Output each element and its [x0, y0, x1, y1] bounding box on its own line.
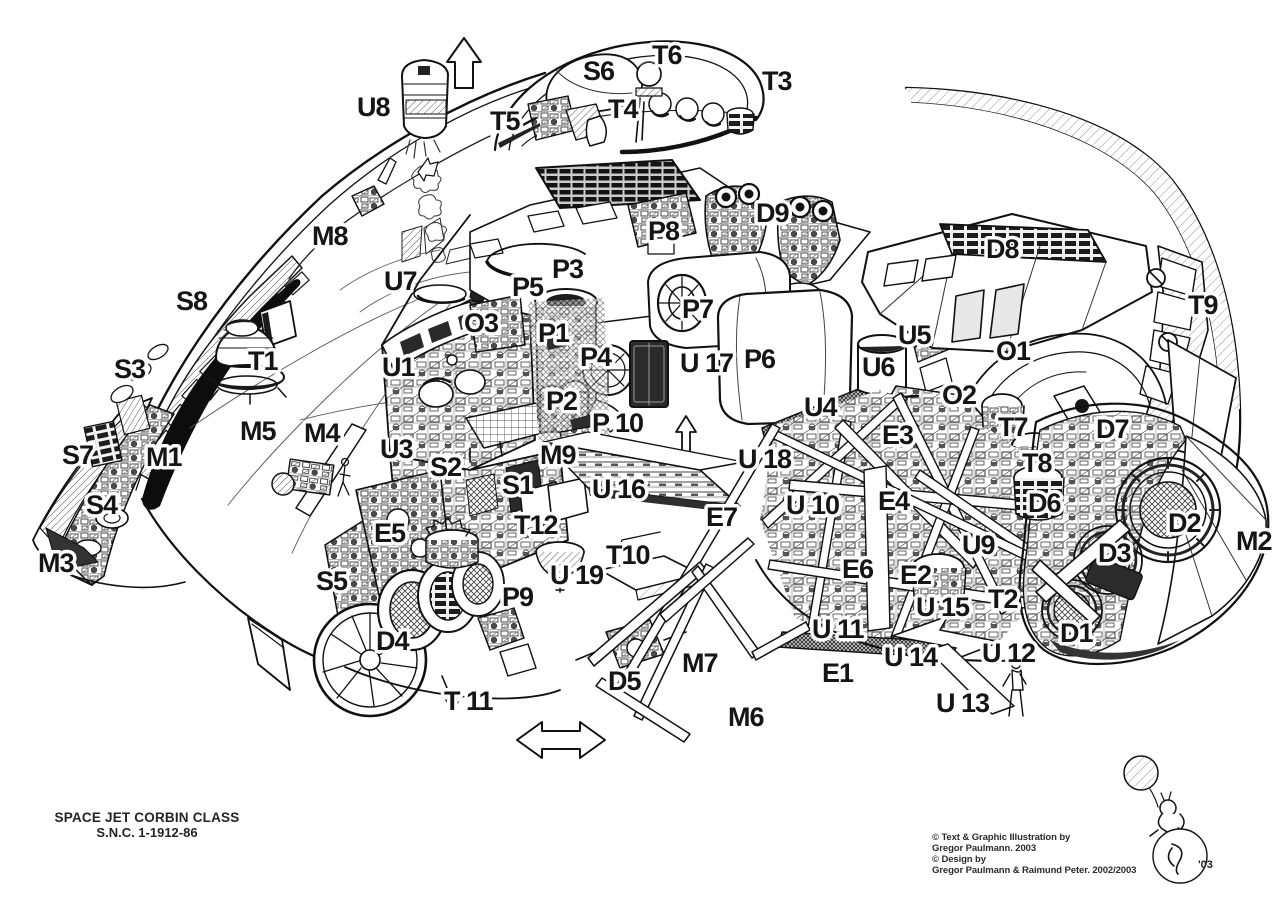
svg-text:S1: S1 [502, 470, 534, 500]
svg-text:D2: D2 [1168, 508, 1201, 538]
svg-text:E2: E2 [900, 560, 931, 590]
svg-text:T4: T4 [608, 94, 638, 124]
svg-text:M1: M1 [146, 442, 182, 472]
svg-text:U1: U1 [382, 352, 415, 382]
svg-text:D5: D5 [608, 666, 641, 696]
svg-text:E6: E6 [842, 554, 874, 584]
svg-text:T9: T9 [1188, 290, 1218, 320]
svg-text:U7: U7 [384, 266, 417, 296]
svg-text:T2: T2 [988, 584, 1018, 614]
svg-text:© Design by: © Design by [932, 854, 987, 865]
svg-text:U 11: U 11 [812, 614, 865, 644]
svg-text:S2: S2 [430, 452, 461, 482]
svg-text:P6: P6 [744, 344, 776, 374]
svg-text:P5: P5 [512, 272, 544, 302]
svg-text:T5: T5 [490, 106, 520, 136]
svg-text:U9: U9 [962, 530, 995, 560]
svg-text:S.N.C. 1-1912-86: S.N.C. 1-1912-86 [96, 825, 197, 840]
svg-text:E7: E7 [706, 502, 737, 532]
svg-text:O1: O1 [996, 336, 1031, 366]
svg-text:U 15: U 15 [916, 592, 970, 622]
svg-text:E4: E4 [878, 486, 910, 516]
svg-text:U3: U3 [380, 434, 413, 464]
svg-text:S8: S8 [176, 286, 208, 316]
svg-text:P9: P9 [502, 582, 534, 612]
svg-text:O3: O3 [464, 308, 499, 338]
svg-text:D4: D4 [376, 626, 409, 656]
svg-text:© Text & Graphic Illustration: © Text & Graphic Illustration by [932, 832, 1071, 843]
svg-text:M8: M8 [312, 221, 348, 251]
svg-text:Gregor Paulmann. 2003: Gregor Paulmann. 2003 [932, 843, 1036, 854]
svg-text:P2: P2 [546, 386, 577, 416]
svg-text:U5: U5 [898, 320, 931, 350]
svg-text:P4: P4 [580, 342, 612, 372]
svg-text:U 12: U 12 [982, 638, 1035, 668]
svg-text:M6: M6 [728, 702, 764, 732]
svg-text:D3: D3 [1098, 538, 1131, 568]
svg-text:M3: M3 [38, 548, 74, 578]
svg-text:U6: U6 [862, 352, 895, 382]
svg-text:T1: T1 [248, 346, 278, 376]
svg-text:S5: S5 [316, 566, 348, 596]
svg-text:O2: O2 [942, 380, 976, 410]
svg-text:M5: M5 [240, 416, 276, 446]
svg-text:D6: D6 [1028, 488, 1061, 518]
svg-text:U 13: U 13 [936, 688, 990, 718]
svg-text:U 17: U 17 [680, 348, 733, 378]
svg-text:P 10: P 10 [592, 408, 643, 438]
svg-text:P8: P8 [648, 216, 680, 246]
svg-text:U8: U8 [357, 92, 390, 122]
svg-text:M2: M2 [1236, 526, 1272, 556]
svg-text:SPACE JET CORBIN CLASS: SPACE JET CORBIN CLASS [55, 810, 240, 825]
svg-text:E5: E5 [374, 518, 406, 548]
svg-text:U 18: U 18 [738, 444, 792, 474]
svg-text:U 16: U 16 [592, 474, 646, 504]
svg-text:T6: T6 [652, 40, 682, 70]
svg-text:D7: D7 [1096, 414, 1129, 444]
svg-text:D8: D8 [986, 234, 1019, 264]
svg-text:D9: D9 [756, 198, 789, 228]
svg-text:E1: E1 [822, 658, 854, 688]
svg-text:D1: D1 [1060, 618, 1093, 648]
svg-text:P3: P3 [552, 254, 584, 284]
svg-text:S3: S3 [114, 354, 146, 384]
svg-text:T7: T7 [998, 412, 1028, 442]
svg-text:S4: S4 [86, 490, 118, 520]
svg-text:T8: T8 [1022, 448, 1052, 478]
svg-text:'03: '03 [1198, 859, 1213, 871]
svg-text:U 14: U 14 [884, 642, 938, 672]
svg-text:U 10: U 10 [786, 490, 839, 520]
svg-text:S7: S7 [62, 440, 93, 470]
svg-text:T3: T3 [762, 66, 792, 96]
svg-text:P1: P1 [538, 318, 570, 348]
svg-text:E3: E3 [882, 420, 914, 450]
svg-text:M4: M4 [304, 418, 340, 448]
svg-text:S6: S6 [583, 56, 615, 86]
svg-text:U4: U4 [804, 392, 837, 422]
svg-text:T 11: T 11 [444, 686, 494, 716]
svg-text:U 19: U 19 [550, 560, 604, 590]
svg-text:Gregor Paulmann & Raimund Pete: Gregor Paulmann & Raimund Peter. 2002/20… [932, 865, 1136, 876]
svg-text:P7: P7 [682, 294, 713, 324]
svg-text:M9: M9 [540, 440, 576, 470]
svg-text:T12: T12 [514, 510, 558, 540]
svg-text:M7: M7 [682, 648, 718, 678]
svg-text:T10: T10 [606, 540, 650, 570]
